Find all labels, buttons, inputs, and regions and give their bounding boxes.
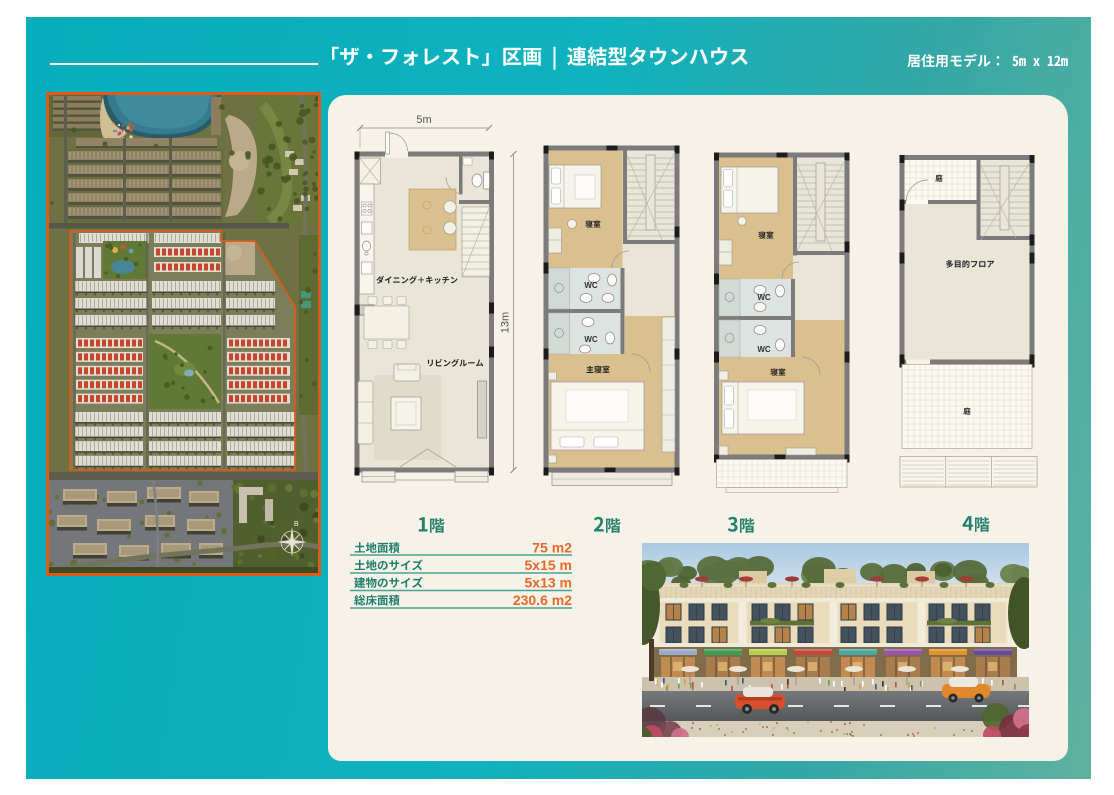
svg-text:230.6 m2: 230.6 m2 [513, 592, 572, 608]
svg-text:75 m2: 75 m2 [532, 540, 572, 556]
svg-text:WC: WC [584, 335, 598, 344]
svg-text:5m: 5m [416, 114, 431, 126]
svg-text:13m: 13m [500, 312, 512, 333]
svg-text:WC: WC [757, 293, 771, 302]
svg-text:5x15 m: 5x15 m [525, 557, 572, 573]
svg-text:WC: WC [584, 281, 598, 290]
svg-text:5x13 m: 5x13 m [525, 575, 572, 591]
svg-text:WC: WC [757, 345, 771, 354]
